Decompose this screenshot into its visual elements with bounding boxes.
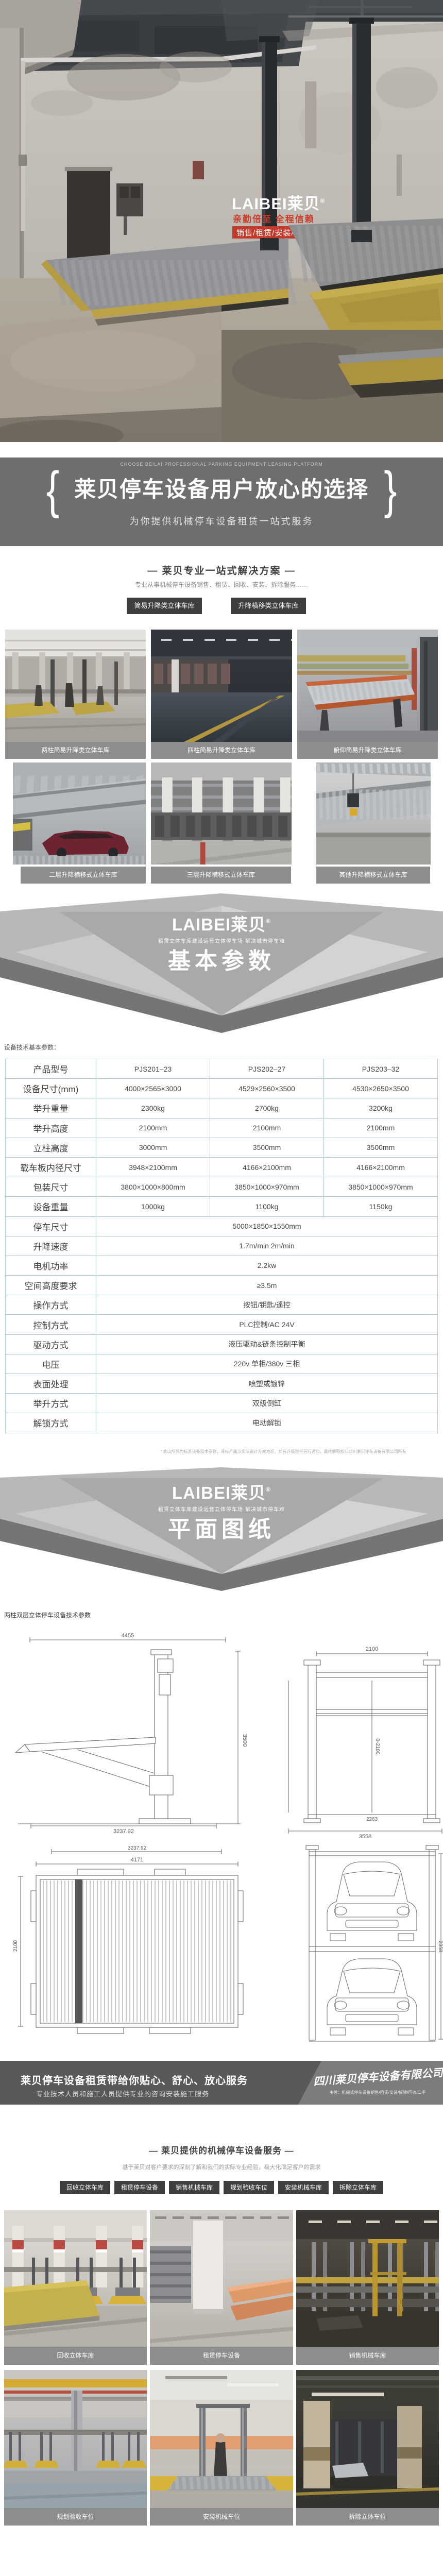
svg-text:亲勤倍至 全程信赖: 亲勤倍至 全程信赖 xyxy=(233,214,315,224)
svg-text:2358: 2358 xyxy=(437,1941,443,1953)
svg-text:LAIBEI莱贝®: LAIBEI莱贝® xyxy=(232,195,325,213)
svg-text:3558: 3558 xyxy=(359,1834,371,1840)
svg-text:2263: 2263 xyxy=(366,1817,378,1822)
svg-text:租赁立体车库建设运营立体停车场·解决城市停车难: 租赁立体车库建设运营立体停车场·解决城市停车难 xyxy=(158,938,285,944)
svg-text:租赁立体车库建设运营立体停车场·解决城市停车难: 租赁立体车库建设运营立体停车场·解决城市停车难 xyxy=(158,1506,285,1513)
svg-text:3500: 3500 xyxy=(242,1734,248,1747)
svg-text:4171: 4171 xyxy=(131,1857,143,1863)
svg-text:平面图纸: 平面图纸 xyxy=(168,1517,275,1542)
svg-text:0-2100: 0-2100 xyxy=(374,1738,380,1755)
svg-text:4455: 4455 xyxy=(122,1633,134,1639)
svg-text:3237.92: 3237.92 xyxy=(128,1845,147,1851)
svg-text:3237.92: 3237.92 xyxy=(113,1828,134,1835)
svg-text:2100: 2100 xyxy=(13,1940,19,1952)
svg-text:LAIBEI莱贝®: LAIBEI莱贝® xyxy=(172,1483,271,1502)
svg-text:基本参数: 基本参数 xyxy=(168,948,275,974)
svg-text:LAIBEI莱贝®: LAIBEI莱贝® xyxy=(172,915,271,934)
svg-text:2100: 2100 xyxy=(366,1646,378,1652)
